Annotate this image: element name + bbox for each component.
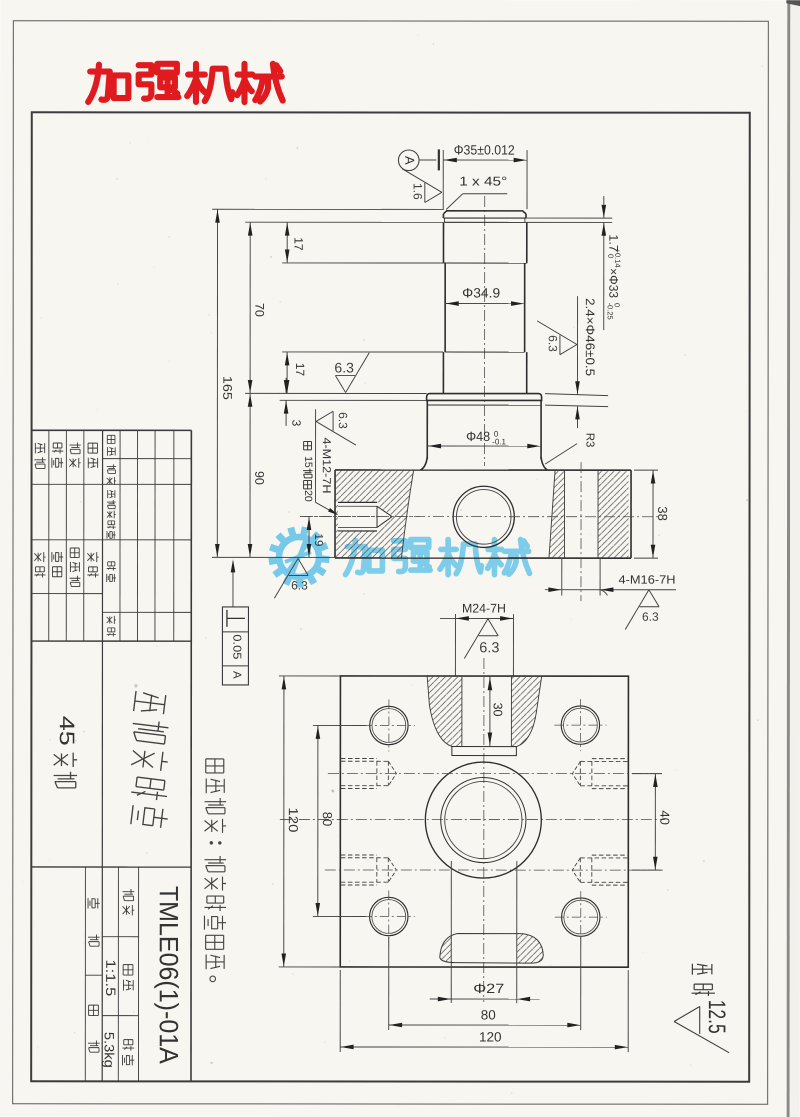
svg-text:A: A: [402, 156, 417, 165]
svg-text:0: 0: [606, 254, 615, 258]
svg-text:R3: R3: [584, 433, 596, 448]
svg-text:5.3kg: 5.3kg: [102, 1032, 117, 1068]
svg-text:4-M12-7H: 4-M12-7H: [320, 437, 332, 493]
svg-text:120: 120: [479, 1030, 502, 1045]
svg-text:6.3: 6.3: [642, 610, 659, 624]
svg-text:-0.1: -0.1: [492, 437, 506, 446]
svg-text:1.6: 1.6: [411, 183, 425, 200]
svg-text:1 x 45°: 1 x 45°: [459, 174, 507, 189]
svg-text:17: 17: [293, 363, 307, 377]
svg-text:3: 3: [289, 420, 303, 427]
svg-text:A: A: [230, 671, 242, 679]
svg-text:×Φ33: ×Φ33: [606, 268, 620, 298]
svg-text:2.4×Φ46±0.5: 2.4×Φ46±0.5: [583, 298, 597, 376]
svg-text:4-M16-7H: 4-M16-7H: [618, 573, 675, 587]
svg-text:80: 80: [481, 1008, 496, 1023]
svg-text:6.3: 6.3: [291, 578, 308, 592]
svg-text:TMLE06(1)-01A: TMLE06(1)-01A: [154, 886, 184, 1064]
svg-text:40: 40: [657, 810, 672, 824]
svg-text:15: 15: [302, 456, 314, 468]
svg-text:Φ34.9: Φ34.9: [462, 286, 500, 301]
svg-text:1:1.5: 1:1.5: [103, 959, 118, 996]
svg-text:12.5: 12.5: [703, 1000, 730, 1034]
svg-text:Φ27: Φ27: [473, 981, 504, 996]
svg-text:6.3: 6.3: [546, 335, 560, 352]
svg-text:120: 120: [286, 807, 301, 832]
svg-text:0.05: 0.05: [230, 634, 242, 659]
svg-text:6.3: 6.3: [334, 360, 354, 376]
svg-text:90: 90: [252, 471, 266, 485]
svg-text:165: 165: [220, 376, 234, 400]
svg-text:38: 38: [655, 506, 670, 520]
svg-text:20: 20: [302, 490, 314, 502]
svg-text:45: 45: [55, 716, 78, 746]
svg-text:-0.25: -0.25: [606, 303, 615, 320]
svg-text:6.3: 6.3: [336, 412, 350, 429]
svg-text:17: 17: [292, 237, 306, 251]
svg-text:6.3: 6.3: [479, 640, 499, 656]
svg-text:80: 80: [320, 812, 335, 826]
svg-text:30: 30: [491, 703, 505, 717]
svg-text:Φ48: Φ48: [466, 429, 490, 444]
svg-text:Φ35±0.012: Φ35±0.012: [454, 143, 515, 158]
svg-text:70: 70: [252, 303, 266, 317]
svg-text:M24-7H: M24-7H: [462, 602, 506, 616]
